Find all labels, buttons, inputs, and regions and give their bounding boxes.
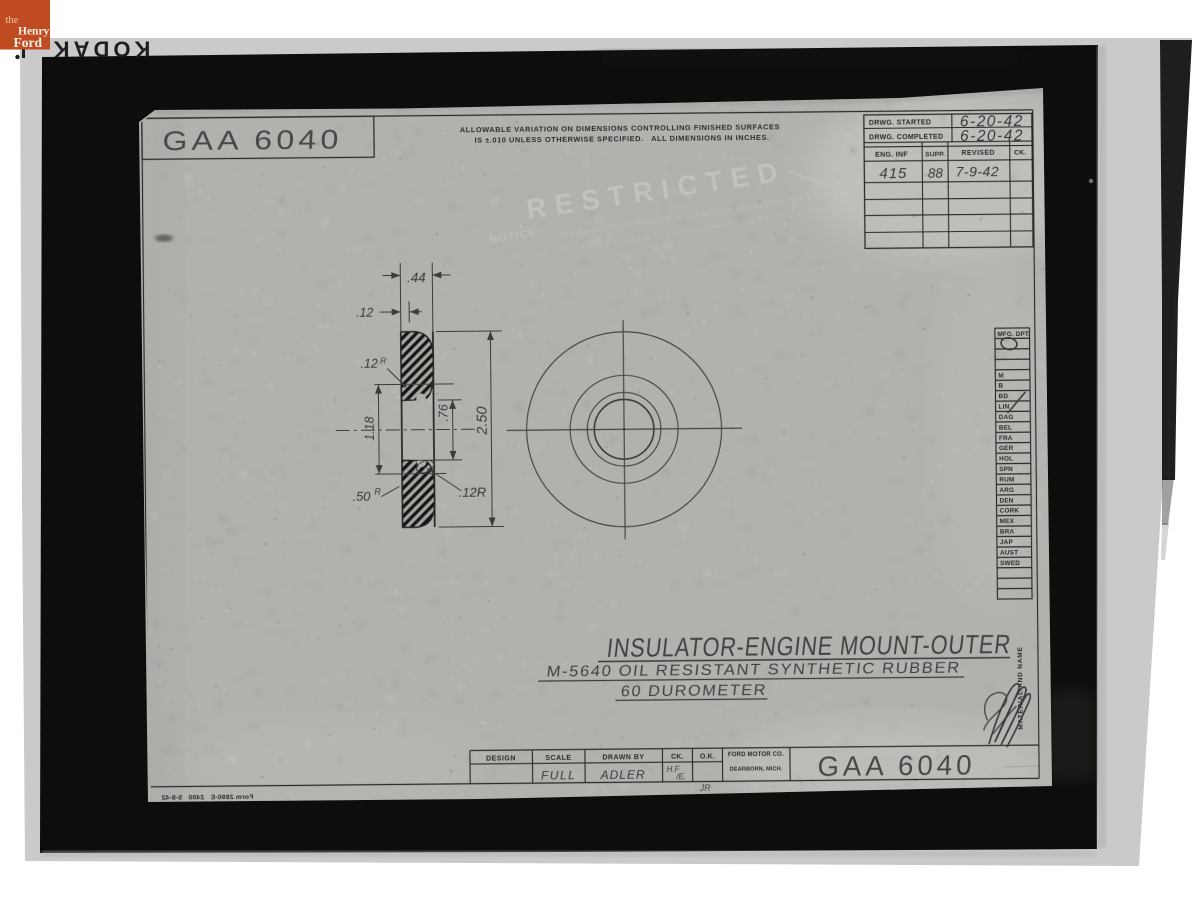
svg-text:415: 415 — [879, 165, 907, 182]
svg-text:AUST: AUST — [1000, 549, 1018, 556]
svg-text:Ford: Ford — [14, 35, 43, 50]
svg-text:GER: GER — [999, 445, 1014, 452]
svg-text:M: M — [998, 372, 1004, 379]
svg-text:GAA 6040: GAA 6040 — [162, 124, 343, 156]
svg-text:KODAK: KODAK — [50, 37, 151, 62]
svg-text:CK.: CK. — [1014, 149, 1026, 156]
svg-text:ARG: ARG — [999, 487, 1014, 494]
svg-text:FULL: FULL — [541, 768, 576, 782]
svg-text:DAG: DAG — [999, 414, 1014, 421]
svg-text:SWED: SWED — [1000, 560, 1020, 567]
svg-text:FORD MOTOR CO.: FORD MOTOR CO. — [728, 752, 784, 759]
svg-text:2.50: 2.50 — [475, 406, 491, 435]
svg-text:.76: .76 — [437, 404, 451, 422]
svg-text:BRA: BRA — [1000, 529, 1015, 536]
svg-text:MEX: MEX — [1000, 518, 1015, 525]
svg-text:DRWG. COMPLETED: DRWG. COMPLETED — [869, 133, 943, 141]
svg-text:REVISED: REVISED — [961, 150, 995, 157]
svg-text:SPN: SPN — [999, 466, 1013, 473]
svg-text:RUM: RUM — [999, 477, 1014, 484]
svg-text:MFG. DPT.: MFG. DPT. — [997, 331, 1030, 338]
svg-text:60 DUROMETER: 60 DUROMETER — [620, 682, 768, 700]
svg-text:HOL: HOL — [999, 456, 1013, 463]
svg-text:DRAWN BY: DRAWN BY — [602, 754, 644, 761]
svg-text:BEL: BEL — [999, 424, 1012, 431]
svg-text:B: B — [998, 383, 1003, 390]
svg-text:.12: .12 — [360, 357, 378, 371]
svg-text:DESIGN: DESIGN — [486, 755, 516, 762]
svg-text:SCALE: SCALE — [545, 755, 571, 762]
svg-text:6-20-42: 6-20-42 — [960, 127, 1024, 145]
svg-text:/E.: /E. — [675, 772, 686, 781]
svg-text:.44: .44 — [407, 270, 426, 285]
svg-text:DRWG. STARTED: DRWG. STARTED — [869, 119, 931, 127]
svg-text:the: the — [6, 15, 19, 26]
svg-text:LIN: LIN — [999, 404, 1010, 411]
svg-text:FRA: FRA — [999, 435, 1013, 442]
svg-text:.50: .50 — [352, 489, 371, 504]
svg-text:CORK: CORK — [1000, 508, 1020, 515]
svg-text:R: R — [380, 356, 386, 366]
svg-text:SUPP.: SUPP. — [925, 151, 945, 158]
svg-text:JAP: JAP — [1000, 539, 1014, 546]
svg-text:ENG. INF: ENG. INF — [875, 152, 908, 159]
svg-text:.12: .12 — [356, 306, 374, 320]
svg-text:Form 2890-E 2400 5-8-42: Form 2890-E 2400 5-8-42 — [161, 794, 253, 802]
svg-text:.12R: .12R — [459, 485, 487, 500]
svg-text:CK.: CK. — [671, 754, 684, 761]
svg-text:BD: BD — [998, 393, 1008, 400]
svg-text:O.K.: O.K. — [700, 753, 715, 760]
svg-text:DEARBORN, MICH.: DEARBORN, MICH. — [730, 766, 783, 773]
svg-text:JR: JR — [699, 783, 712, 793]
svg-text:1.18: 1.18 — [363, 416, 377, 441]
svg-text:DEN: DEN — [999, 497, 1013, 504]
svg-text:ADLER: ADLER — [600, 768, 646, 782]
svg-text:R: R — [374, 487, 381, 497]
svg-text:GAA 6040: GAA 6040 — [817, 749, 976, 782]
svg-text:88: 88 — [928, 166, 944, 181]
svg-text:7-9-42: 7-9-42 — [956, 163, 1000, 179]
